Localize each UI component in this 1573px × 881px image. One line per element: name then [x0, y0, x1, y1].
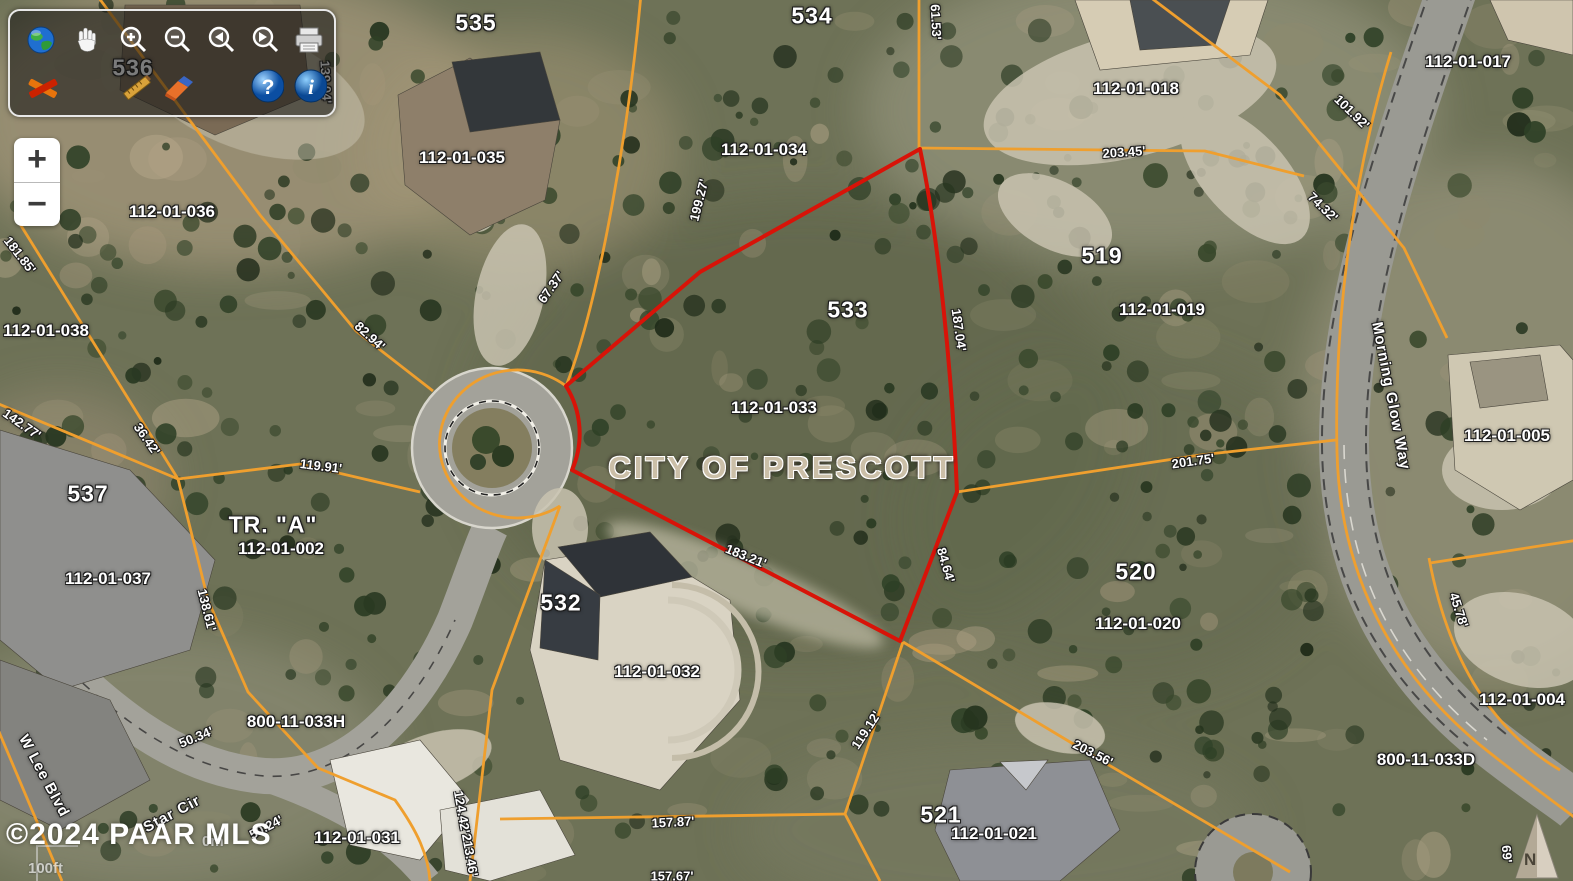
north-label: N	[1524, 850, 1536, 870]
zoom-control: + −	[14, 138, 60, 226]
info-icon: i	[293, 68, 327, 104]
help-button[interactable]: ?	[250, 69, 284, 103]
zoom-next-icon	[250, 25, 280, 55]
info-button[interactable]: i	[293, 69, 327, 103]
eraser-button[interactable]	[162, 71, 196, 105]
clear-button[interactable]	[26, 71, 60, 105]
eraser-icon	[162, 71, 196, 105]
pan-button[interactable]	[70, 23, 104, 57]
satellite-map	[0, 0, 1573, 881]
svg-text:?: ?	[262, 76, 275, 99]
print-button[interactable]	[292, 23, 326, 57]
zoom-out-button[interactable]	[160, 23, 194, 57]
svg-text:i: i	[308, 75, 314, 99]
map-toolbar: ? i	[8, 9, 336, 117]
print-icon	[293, 25, 325, 55]
zoom-next-button[interactable]	[248, 23, 282, 57]
zoom-previous-icon	[206, 25, 236, 55]
zoom-in-button[interactable]	[116, 23, 150, 57]
zoom-previous-button[interactable]	[204, 23, 238, 57]
red-x-icon	[26, 71, 60, 105]
pan-hand-icon	[72, 25, 102, 55]
scale-feet: 100ft	[28, 860, 63, 877]
globe-button[interactable]	[24, 23, 58, 57]
measure-icon	[120, 71, 154, 105]
zoom-out-minus-button[interactable]: −	[14, 183, 60, 227]
globe-icon	[26, 25, 56, 55]
measure-button[interactable]	[120, 71, 154, 105]
map-canvas[interactable]: CITY OF PRESCOTT 53553453651953353753252…	[0, 0, 1573, 881]
watermark: ©2024 PAAR MLS	[6, 818, 272, 852]
help-icon: ?	[250, 68, 284, 104]
zoom-out-icon	[162, 25, 192, 55]
zoom-in-icon	[118, 25, 148, 55]
zoom-in-plus-button[interactable]: +	[14, 138, 60, 183]
